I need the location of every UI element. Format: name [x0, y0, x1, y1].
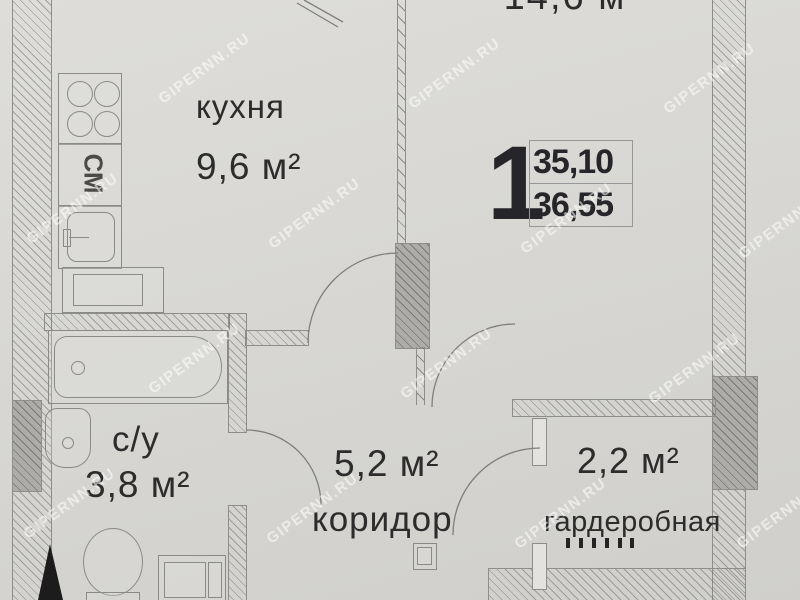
stove-burner: [67, 111, 93, 137]
bathroom-name-label: с/у: [112, 420, 160, 460]
watermark-text: GIPERNN.RU: [405, 35, 503, 113]
wardrobe-door-jamb-top: [532, 418, 547, 466]
bathtub: [48, 330, 228, 404]
corridor-name-label: коридор: [312, 500, 453, 540]
kitchen-name-label: кухня: [196, 88, 285, 126]
wall-exterior-right-pier: [712, 376, 758, 490]
wall-bathroom-top: [44, 313, 230, 331]
kitchen-area-label: 9,6 м²: [196, 146, 301, 188]
wall-kitchen-room-pier: [395, 243, 430, 349]
stove-burner: [94, 81, 120, 107]
bathroom-cabinet-door: [164, 562, 206, 598]
kitchen-sink-faucet: [63, 229, 71, 247]
wardrobe-door-jamb-bottom: [532, 543, 547, 590]
area-living-value: 35,10: [530, 141, 632, 184]
bathtub-drain: [71, 361, 85, 375]
kitchen-sink: [58, 205, 122, 269]
bathroom-cabinet: [158, 555, 226, 600]
washing-machine-label: СМ: [78, 153, 109, 193]
washbasin: [45, 408, 91, 468]
wall-room-bottom: [512, 399, 716, 417]
washbasin-drain: [62, 437, 74, 449]
kitchen-cabinet-inner: [73, 274, 143, 306]
kitchen-sink-faucet-line: [69, 237, 89, 238]
bathroom-cabinet-side: [208, 562, 222, 598]
wall-corridor-room-partition: [416, 347, 425, 405]
wall-exterior-left: [12, 0, 52, 600]
wall-kitchen-room-partition: [397, 0, 406, 245]
stove: [58, 73, 122, 145]
area-summary-table: 35,10 36,55: [529, 140, 633, 227]
toilet-tank: [86, 592, 140, 600]
bathroom-door-arc: [246, 430, 321, 505]
wall-corridor-top: [245, 330, 309, 346]
corridor-box: [413, 543, 437, 570]
area-total-value: 36,55: [530, 184, 632, 226]
living-room-area-label: 14,6 м: [460, 0, 670, 19]
corridor-area-label: 5,2 м²: [334, 443, 439, 485]
wardrobe-area-label: 2,2 м²: [577, 440, 680, 482]
wardrobe-door-arc: [453, 448, 540, 535]
wardrobe-name-label: гардеробная: [544, 506, 721, 539]
kitchen-door-arc: [308, 253, 398, 343]
stove-burner: [94, 111, 120, 137]
room-door-arc: [432, 324, 515, 407]
top-door-leaf: [297, 0, 343, 27]
wall-wardrobe-bottom: [488, 568, 746, 600]
wall-exterior-left-pier: [12, 400, 42, 492]
toilet-bowl: [83, 528, 143, 596]
kitchen-cabinet: [62, 267, 164, 313]
washing-machine: СМ: [58, 143, 122, 207]
floor-plan: СМ: [0, 0, 800, 600]
cutoff-marks: [566, 538, 634, 548]
bathroom-area-label: 3,8 м²: [85, 464, 190, 506]
wall-bathroom-right-lower: [228, 505, 247, 600]
stove-burner: [67, 81, 93, 107]
corridor-box-inner: [417, 547, 432, 565]
